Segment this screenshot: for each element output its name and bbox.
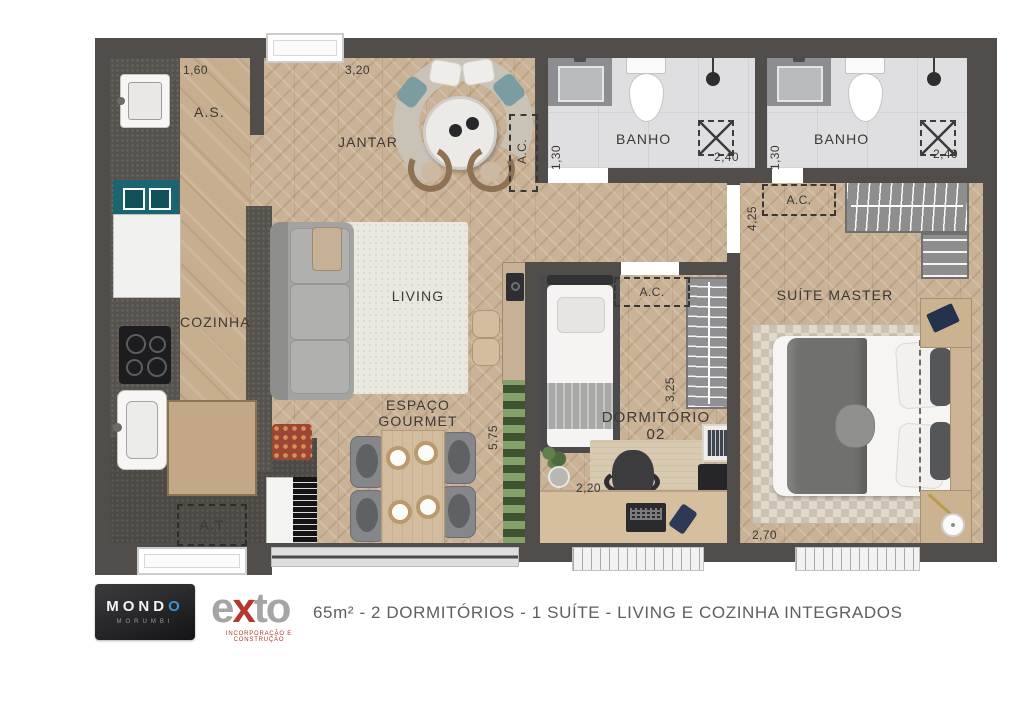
chair-seat [448,440,470,474]
round-cushion [835,404,875,448]
toilet-tank [845,57,885,74]
exto-logo-tagline: INCORPORAÇÃO E CONSTRUÇÃO [211,631,307,643]
pillow [557,297,605,333]
bathroom1-label: BANHO [616,131,671,147]
door-jamb [727,185,740,191]
wall-segment [967,38,983,183]
keyboard-icon [630,508,662,520]
suite-closet-shelves [921,233,969,279]
grill-cabinet [266,477,294,545]
laundry-sink-basin [128,82,162,120]
mondo-logo-name: MONDO [106,599,184,615]
wall-segment [525,262,627,275]
place-setting [414,441,438,465]
mondo-name-prefix: MOND [106,598,168,615]
burner-icon [147,357,167,377]
chair-seat [356,498,378,532]
wall-segment [608,168,755,183]
wall-segment [95,38,997,58]
door-jamb [772,168,776,183]
vanity-sink-icon [777,66,823,102]
technical-area-label: A.T [199,517,224,533]
lamp-shade-icon [941,513,965,537]
burner-icon [126,334,146,354]
headboard [547,275,613,285]
gourmet-depth-dim: 5,75 [486,404,500,450]
tablet-icon [926,303,960,333]
dining-label: JANTAR [338,134,398,150]
bedroom2-label-line2: 02 [647,426,666,443]
laptop-icon [626,503,666,532]
gourmet-label-block: ESPAÇO GOURMET [366,396,470,430]
bathroom2-vanity [767,58,831,106]
sofa-cushion [290,284,350,340]
mondo-logo-sub: MORUMBI [117,619,174,625]
suite-headboard [950,330,972,506]
service-area-label: A.S. [194,104,225,120]
ac-duct-label: A.C. [513,122,531,182]
appliance-door-icon [149,188,171,210]
dining-width-dim: 3,20 [345,63,370,77]
living-label: LIVING [372,288,464,304]
gourmet-label-line2: GOURMET [378,413,457,429]
plate-icon [418,445,434,461]
burner-icon [126,359,143,376]
floor-plan-page: A.T A.C. [0,0,1024,721]
shower-head-icon [706,72,720,86]
suite-hall-depth-dim: 4,25 [745,185,759,231]
faucet-icon [117,97,125,105]
chair-seat [356,444,378,478]
balcony-glass-door [271,547,519,567]
bathroom1-width-dim: 2,40 [714,150,739,164]
side-serving-table [272,424,312,460]
wall-pillar [95,543,137,575]
table-centerpiece-icon [466,117,479,130]
gourmet-chair [440,486,476,538]
shower-head-icon [927,72,941,86]
door-jamb [548,168,553,183]
wall-segment [673,262,727,275]
bedroom2-depth-dim: 3,25 [663,356,677,402]
suite-closet-hangers [845,179,969,233]
plate-icon [420,499,436,515]
side-console [312,227,342,271]
wall-pillar [243,543,272,575]
sofa-cushion [290,340,350,394]
chair-seat [477,159,502,184]
wall-segment [755,58,767,183]
bathroom2-depth-dim: 1,30 [768,126,782,170]
window-louver [572,547,704,571]
hall-floor [535,183,727,262]
wall-segment [250,58,264,135]
kitchen-sink-basin [126,401,158,459]
bedroom2-label-line1: DORMITÓRIO [602,409,711,426]
place-setting [386,446,410,470]
kitchen-sink [117,390,167,470]
laundry-sink [120,74,170,128]
door-jamb [799,168,803,183]
pouf [472,338,500,366]
tv-icon [506,273,524,301]
place-setting [388,500,412,524]
exto-logo: exto INCORPORAÇÃO E CONSTRUÇÃO [211,586,307,644]
gourmet-chair [440,432,476,484]
lamp-bulb-icon [951,523,955,527]
window [137,547,247,575]
kitchen-label: COZINHA [180,314,251,330]
door-jamb [603,168,608,183]
cooktop-teal-appliance [113,180,179,214]
wall-segment [525,275,540,545]
closet-rail [851,205,963,207]
exto-letter-x: x [232,584,253,631]
ac-duct-box-dining: A.C. [509,114,538,192]
sofa-backrest [270,222,288,400]
faucet-icon [113,423,122,432]
double-bed [773,336,957,496]
bathroom2-label: BANHO [814,131,869,147]
suite-label: SUÍTE MASTER [772,287,898,303]
door-jamb [621,262,627,275]
nightstand [920,298,972,348]
wall-segment [803,168,997,183]
bathroom1-depth-dim: 1,30 [549,126,563,170]
bench-cushion [428,58,463,87]
nightstand [920,490,972,544]
bed-center-dashline [919,340,921,492]
grill-grate-icon [293,477,317,543]
bedroom2-wardrobe [686,277,733,409]
plan-description: 65m² - 2 DORMITÓRIOS - 1 SUÍTE - LIVING … [313,603,903,623]
toilet-tank [626,57,666,74]
exto-letters-to: to [254,584,290,631]
exto-logo-name: exto [211,586,307,630]
place-setting [416,495,440,519]
wall-segment [95,38,110,575]
accent-pillow [930,348,952,406]
bathroom2-width-dim: 2,40 [933,147,958,161]
pouf [472,310,500,338]
ac-duct-box-suite: A.C. [762,184,836,216]
chair-seat [418,159,443,184]
closet-rail [708,282,710,404]
door-jamb [727,247,740,253]
ac-duct-label: A.C. [787,193,812,207]
wall-segment [727,253,740,562]
burner-icon [149,336,166,353]
accent-pillow [930,422,952,480]
door-jamb [673,262,679,275]
service-cabinet [167,400,257,496]
vanity-sink-icon [558,66,604,102]
window-louver [795,547,920,571]
mondo-blue-o-icon: O [168,598,184,615]
plate-icon [390,450,406,466]
technical-area-box: A.T [177,504,247,546]
appliance-door-icon [123,188,145,210]
window [266,33,344,63]
refrigerator [113,214,181,298]
ac-duct-box-bedroom2: A.C. [614,277,690,307]
side-table-round [548,466,570,488]
ac-duct-label: A.C. [640,285,665,299]
service-width-dim: 1,60 [183,63,208,77]
plate-icon [392,504,408,520]
gourmet-label-line1: ESPAÇO [386,397,450,413]
wall-segment [983,38,997,562]
exto-letter-e: e [211,584,232,631]
bathroom1-vanity [548,58,612,106]
cooktop-burners [119,326,171,384]
chair-seat [448,494,470,528]
bedroom2-width-dim: 2,20 [576,481,601,495]
tv-lens-icon [511,282,520,291]
bedroom2-label-block: DORMITÓRIO 02 [588,405,724,447]
lamp-arm-icon [928,493,952,515]
mondo-logo: MONDO MORUMBI [95,584,195,640]
table-centerpiece-icon [449,124,462,137]
suite-width-dim: 2,70 [752,528,777,542]
